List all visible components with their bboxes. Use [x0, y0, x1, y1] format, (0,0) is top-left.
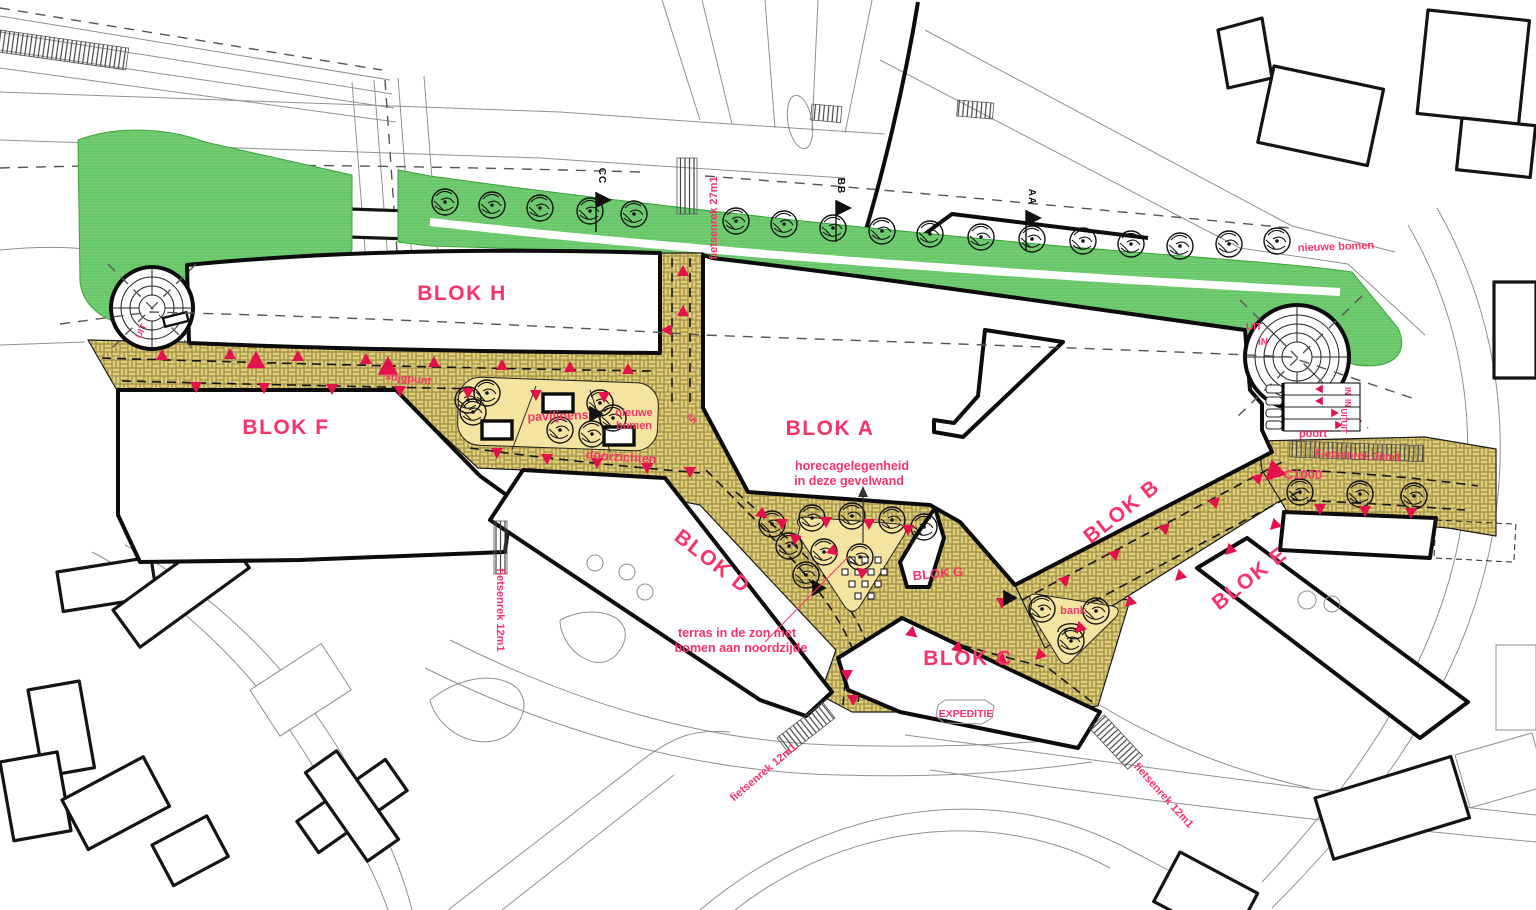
bike-rack-12a — [494, 521, 507, 574]
masterplan-svg: CC BB AA BLOK H BLOK F BLOK A BLOK D BLO… — [0, 0, 1536, 910]
zebra-crossing — [957, 100, 994, 119]
lane-cap — [1266, 385, 1282, 393]
market-stall — [868, 569, 874, 575]
label-terras-2: bomen aan noordzijde — [675, 641, 808, 655]
label-bank: bank — [1060, 605, 1087, 617]
market-stall — [875, 557, 881, 563]
masterplan-canvas: CC BB AA BLOK H BLOK F BLOK A BLOK D BLO… — [0, 0, 1536, 910]
label-in-spiral: IN — [1258, 337, 1268, 348]
label-terras-1: terras in de zon met — [678, 626, 797, 640]
label-paviljoens: paviljoens — [527, 408, 589, 424]
label-blok-h: BLOK H — [417, 282, 507, 305]
label-blok-a: BLOK A — [786, 417, 875, 440]
market-stall — [862, 581, 868, 587]
market-stall — [849, 581, 855, 587]
market-stall — [881, 569, 887, 575]
label-nieuwe-bomen-2: bomen — [616, 420, 652, 432]
lane-cap — [1266, 421, 1282, 429]
label-fietsenrek-12a: fietsenrek 12m1 — [494, 568, 506, 651]
market-stall — [868, 593, 874, 599]
label-lane-in-1: IN — [1343, 387, 1352, 395]
lane-cap — [1266, 409, 1282, 417]
section-label-bb: BB — [835, 178, 846, 194]
label-horeca-2: in deze gevelwand — [794, 474, 904, 488]
blok-e-building-north-wing — [1280, 512, 1436, 558]
label-poort: poort — [1299, 428, 1327, 440]
label-lane-in-2: IN — [1343, 399, 1352, 407]
label-blok-c: BLOK C — [923, 647, 1013, 670]
market-stall — [855, 593, 861, 599]
label-lane-uit-2: UIT — [1339, 421, 1348, 434]
section-label-cc: CC — [596, 168, 607, 184]
zebra-crossing — [811, 104, 842, 123]
label-c1000: C1000 — [1284, 467, 1322, 482]
label-horeca-1: horecagelegenheid — [795, 459, 909, 473]
label-blok-f: BLOK F — [242, 416, 329, 439]
market-stall — [875, 581, 881, 587]
bike-rack-27 — [677, 158, 697, 214]
pavilion — [482, 421, 512, 439]
label-fietsenrek-27: fietsenrek 27m1 — [708, 176, 720, 259]
section-label-aa: AA — [1026, 189, 1037, 205]
label-uit-spiral: UIT — [1246, 322, 1262, 333]
label-expeditie: EXPEDITIE — [939, 708, 994, 720]
label-nieuwe-bomen-1: nieuwe — [615, 407, 652, 419]
lane-cap — [1266, 397, 1282, 405]
market-stall — [842, 569, 848, 575]
